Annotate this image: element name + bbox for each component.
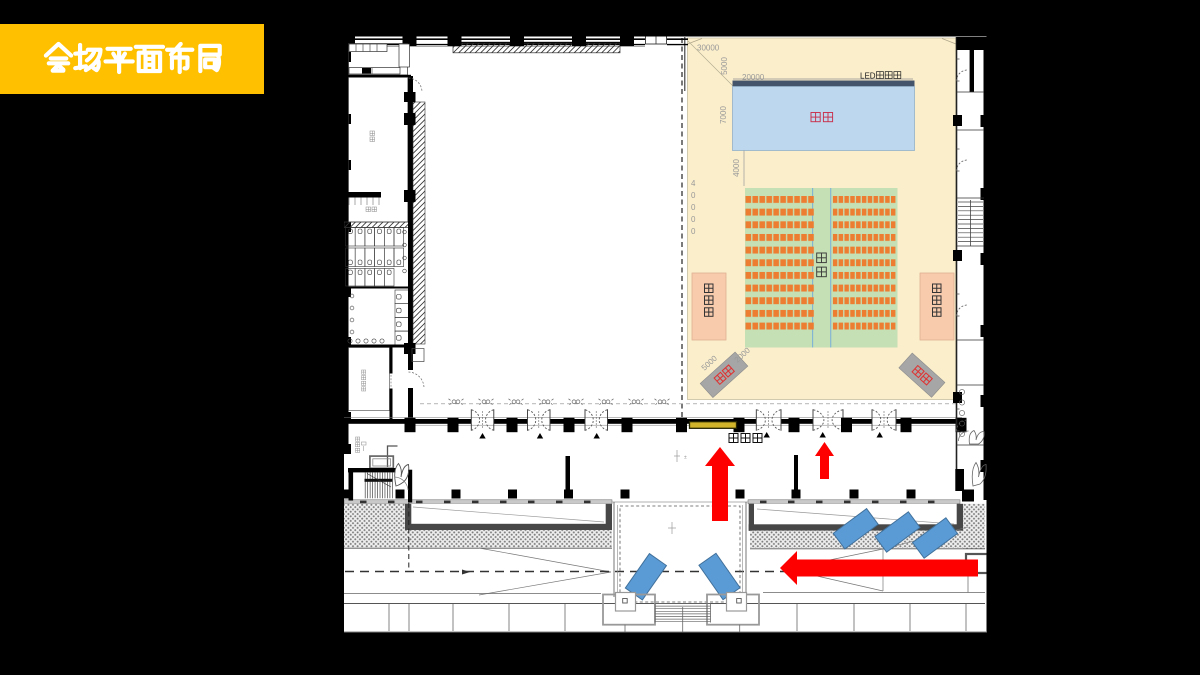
svg-text:4: 4 [691,179,696,188]
svg-text:0: 0 [691,215,696,224]
svg-text:LED: LED [860,72,876,81]
svg-text:±: ± [684,455,687,461]
svg-text:4000: 4000 [732,159,741,177]
svg-text:0: 0 [691,191,696,200]
svg-text:0: 0 [691,203,696,212]
svg-text:0: 0 [691,227,696,236]
svg-text:7000: 7000 [719,106,728,124]
svg-text:20000: 20000 [742,73,765,82]
svg-text:30000: 30000 [697,44,720,53]
svg-text:5000: 5000 [720,57,729,75]
